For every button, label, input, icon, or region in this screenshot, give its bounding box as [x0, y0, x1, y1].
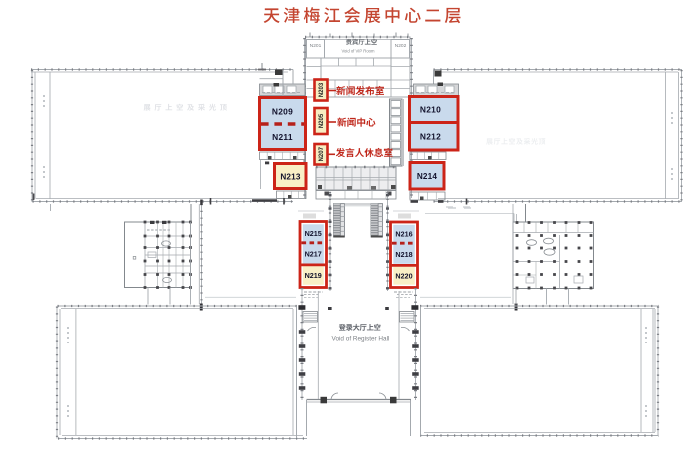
svg-text:N213: N213 [280, 172, 301, 181]
svg-text:N220: N220 [395, 271, 412, 280]
svg-text:N201: N201 [310, 43, 322, 49]
svg-text:N217: N217 [305, 250, 322, 259]
svg-text:Void of Register Hall: Void of Register Hall [332, 336, 390, 343]
svg-text:N219: N219 [305, 271, 322, 280]
svg-text:N210: N210 [420, 105, 441, 115]
svg-text:N203: N203 [319, 82, 325, 97]
svg-text:N212: N212 [420, 132, 441, 142]
svg-text:N215: N215 [305, 229, 322, 238]
svg-text:N207: N207 [319, 146, 325, 161]
svg-text:N214: N214 [417, 172, 438, 181]
svg-text:N218: N218 [395, 250, 412, 259]
svg-text:N216: N216 [395, 230, 412, 239]
svg-text:N205: N205 [319, 113, 325, 128]
svg-text:N209: N209 [272, 107, 293, 117]
svg-text:Void of VIP Room: Void of VIP Room [342, 48, 375, 53]
svg-text:N211: N211 [272, 132, 293, 142]
svg-text:N202: N202 [395, 43, 407, 49]
